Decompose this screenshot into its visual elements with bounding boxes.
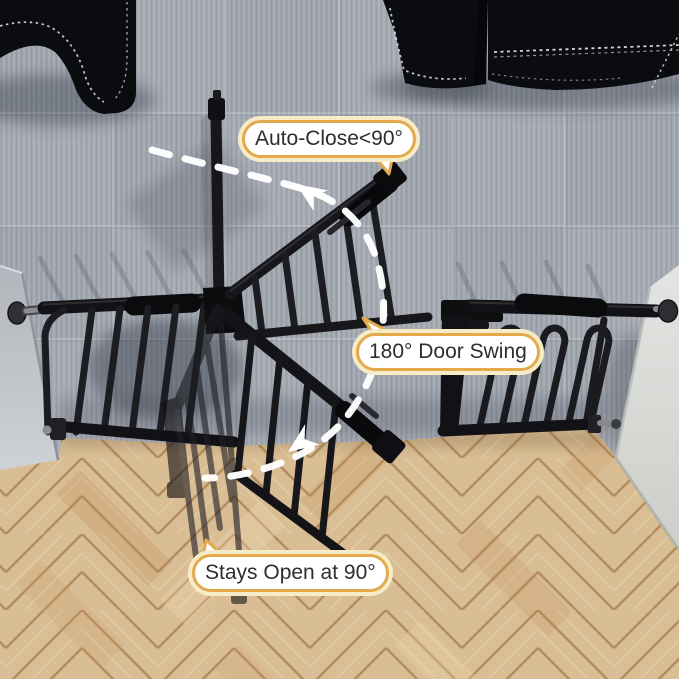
auto-close-label: Auto-Close<90° bbox=[242, 120, 416, 158]
door-swing-label: 180° Door Swing bbox=[356, 333, 540, 371]
sofa-right bbox=[383, 0, 679, 90]
stays-open-label: Stays Open at 90° bbox=[192, 554, 389, 592]
wall-mount-disc-right bbox=[659, 300, 678, 322]
product-image: Auto-Close<90° 180° Door Swing Stays Ope… bbox=[0, 0, 679, 679]
